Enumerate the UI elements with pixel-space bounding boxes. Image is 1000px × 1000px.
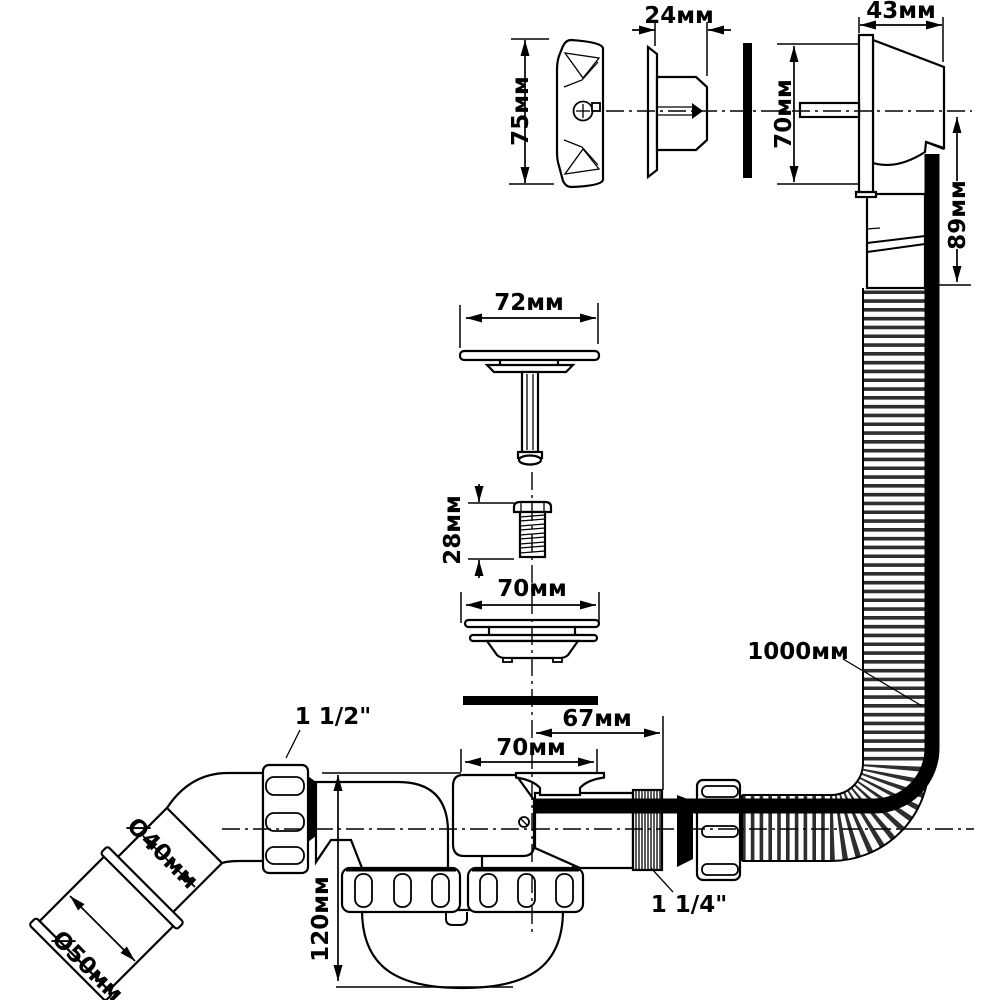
dim-24mm: 24мм — [632, 3, 731, 76]
dim-label-1000mm: 1000мм — [747, 639, 849, 665]
dim-label-70mm-strainer: 70мм — [497, 576, 567, 602]
dim-label-67mm: 67мм — [562, 706, 632, 732]
dim-label-24mm: 24мм — [644, 3, 714, 29]
dim-label-120mm: 120мм — [308, 876, 334, 962]
inlet-union-nut — [263, 765, 316, 873]
dim-label-43mm: 43мм — [866, 0, 936, 24]
label-1-1-2-inch: 1 1/2" — [286, 704, 371, 758]
dim-28mm: 28мм — [440, 484, 514, 578]
siphon-technical-drawing: 75мм 24мм 43мм 70мм 89мм — [0, 0, 1000, 1000]
overflow-tailpipe — [867, 194, 925, 288]
dim-label-75mm: 75мм — [508, 76, 534, 146]
cable-pin — [800, 103, 859, 117]
corrugated-hose — [742, 288, 929, 861]
gasket-section-left — [308, 776, 316, 842]
drain-plug-cover — [460, 351, 599, 465]
dim-75mm: 75мм — [508, 39, 554, 184]
dim-label-72mm: 72мм — [494, 290, 564, 316]
overflow-insert — [648, 47, 707, 177]
body-screw-icon — [519, 817, 529, 827]
dim-70mm-siphon: 70мм — [461, 735, 597, 772]
overflow-housing — [800, 35, 944, 197]
thread-label-1-1-2: 1 1/2" — [295, 704, 371, 730]
thread-label-1-1-4: 1 1/4" — [651, 892, 727, 918]
dim-label-28mm: 28мм — [440, 495, 466, 565]
siphon-bottom-bowl — [362, 910, 563, 988]
bathtub-floor-section — [463, 696, 598, 705]
dim-label-70mm-siphon: 70мм — [496, 735, 566, 761]
hose-union-nut — [697, 780, 740, 880]
dim-70mm-strainer: 70мм — [461, 576, 599, 623]
dim-label-70mm-overflow: 70мм — [771, 79, 797, 149]
siphon-body — [453, 773, 662, 870]
dim-72mm: 72мм — [460, 290, 598, 348]
bowl-union-nut-right — [468, 868, 583, 912]
diagram-canvas: 75мм 24мм 43мм 70мм 89мм — [0, 0, 1000, 1000]
bowl-union-nut-left — [342, 868, 460, 912]
dim-label-89mm: 89мм — [945, 180, 971, 250]
siphon-inlet-elbow — [316, 782, 448, 868]
overflow-faceplate — [557, 40, 603, 187]
